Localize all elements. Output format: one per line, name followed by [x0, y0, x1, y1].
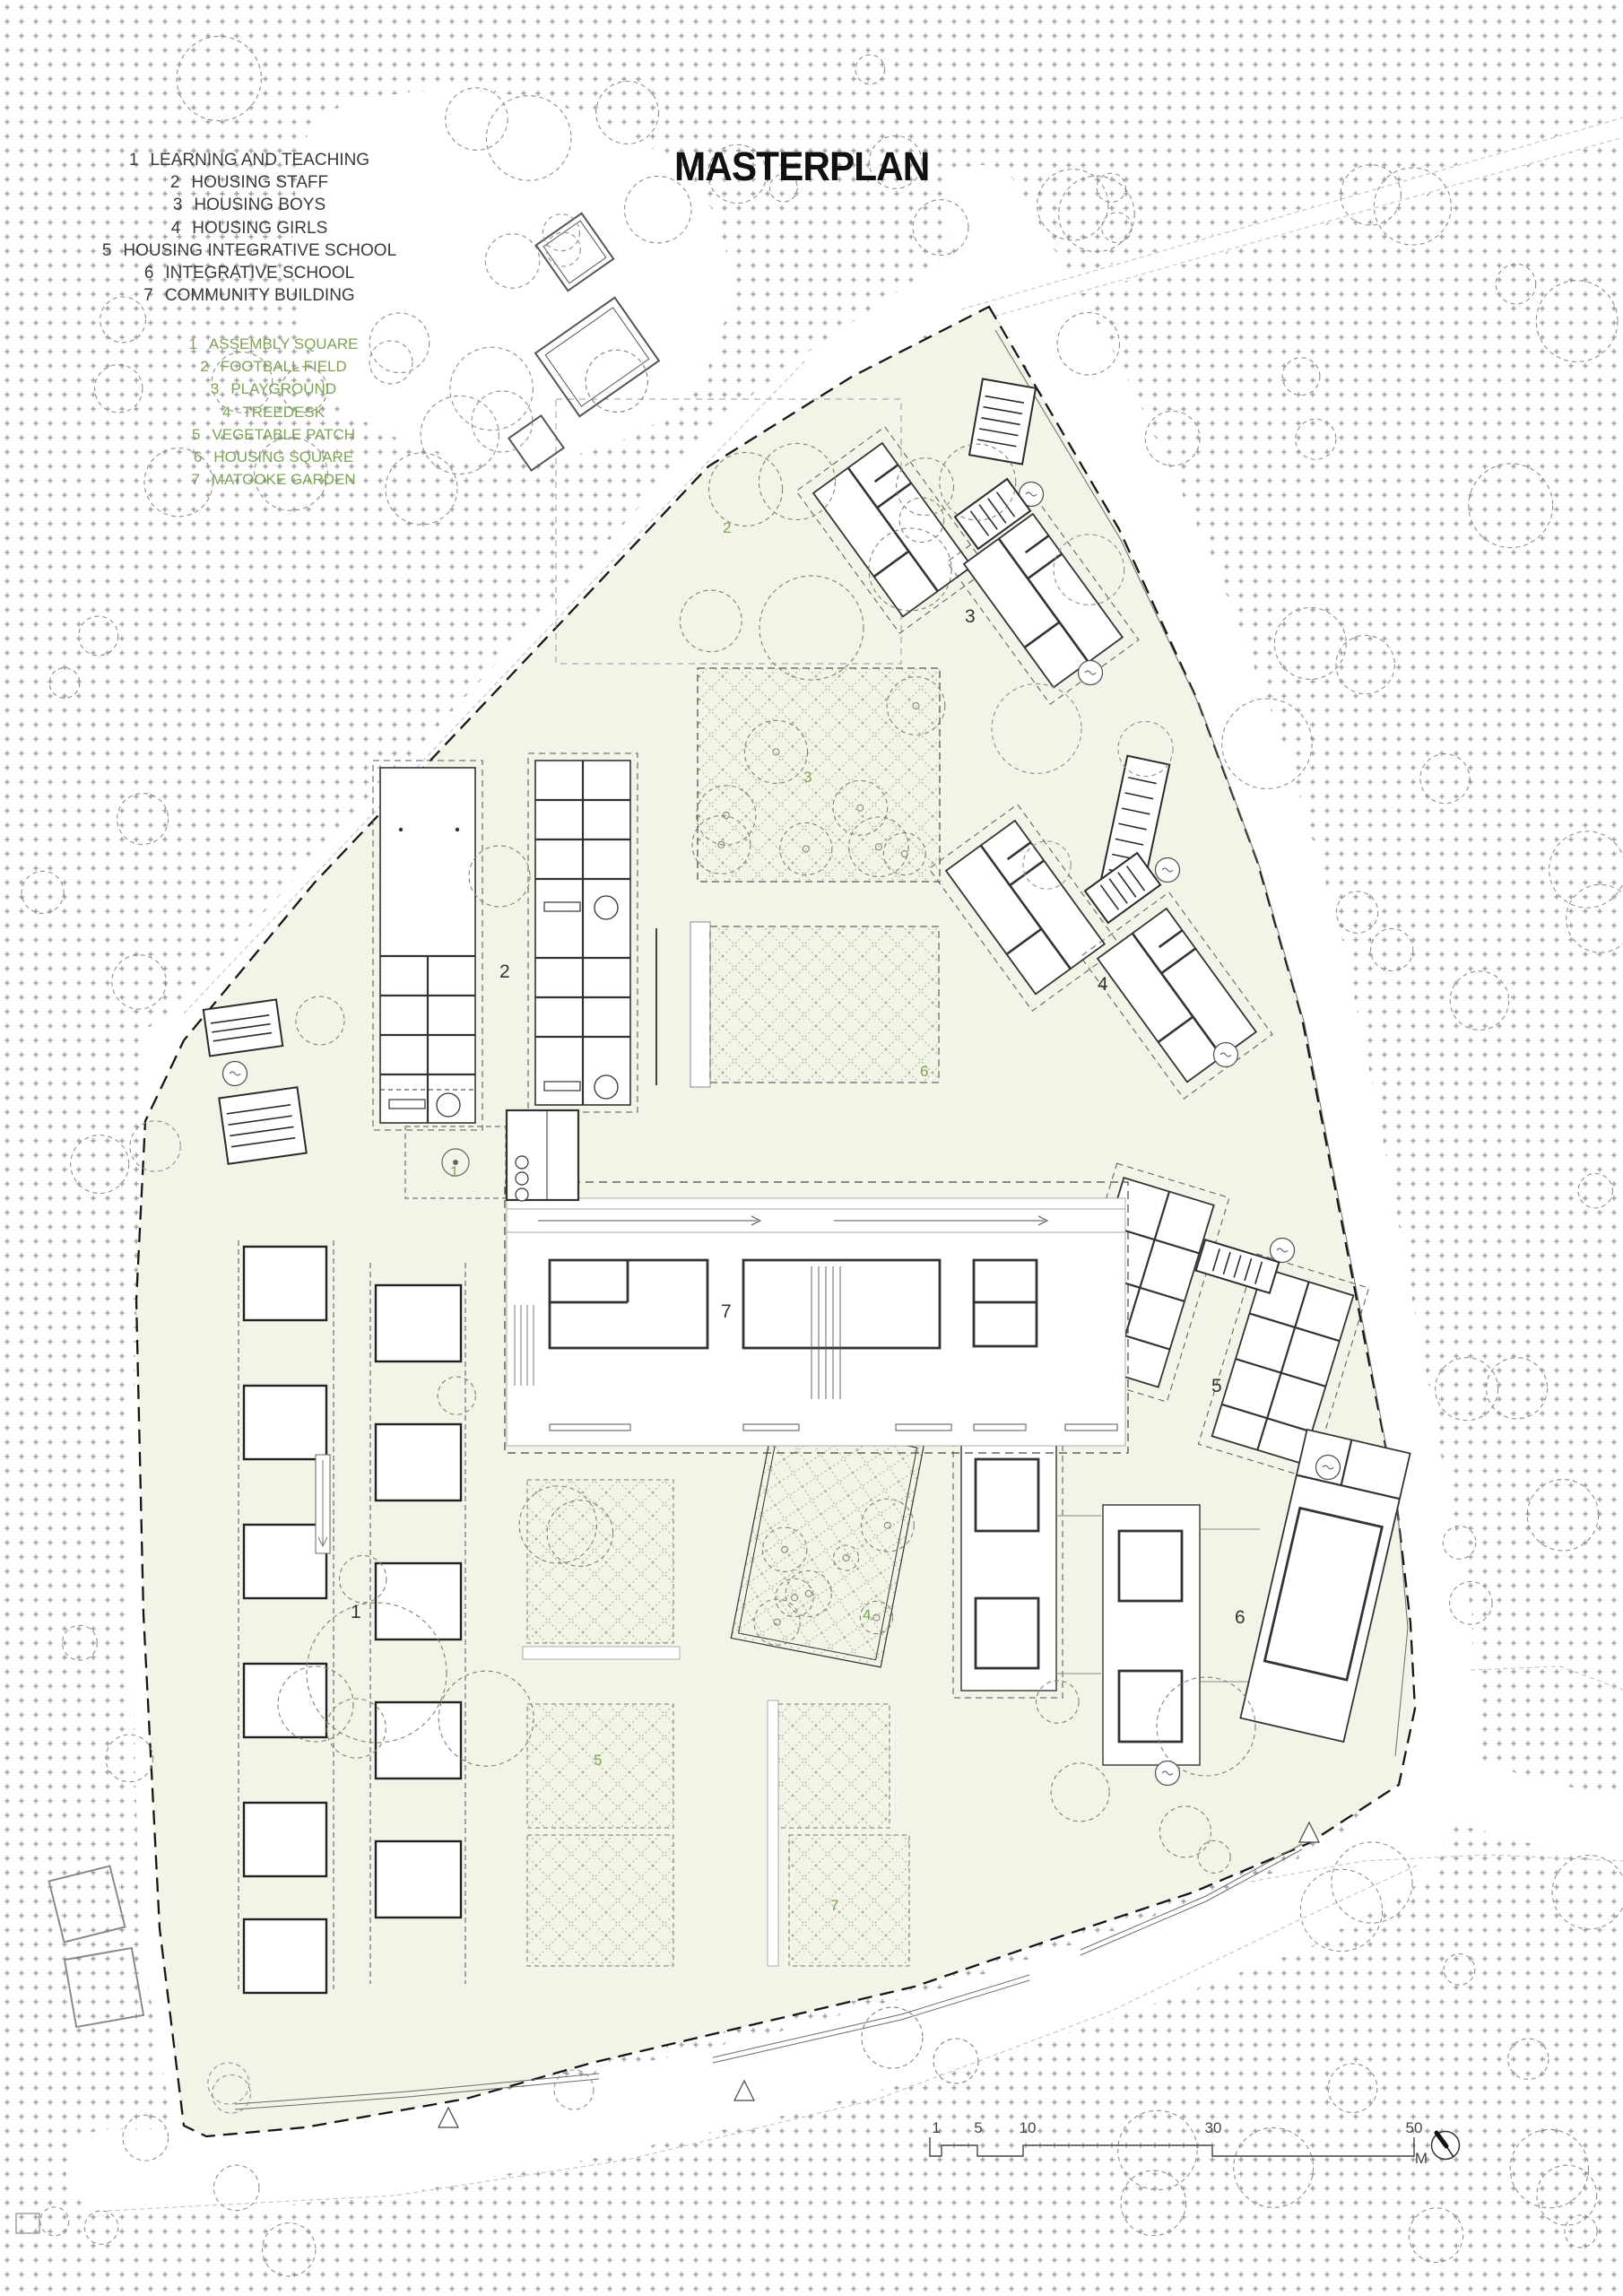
scale-tick: 10	[1020, 2119, 1037, 2136]
matooke-garden-plot	[527, 1835, 673, 1966]
plan-green-label-1: 1	[450, 1163, 458, 1180]
bench-wall	[690, 922, 710, 1087]
plan-green-label-5: 5	[594, 1752, 602, 1769]
plan-green-label-2: 2	[723, 519, 731, 536]
playground	[698, 668, 940, 882]
scale-tick: 5	[974, 2119, 982, 2136]
housing-square	[710, 926, 939, 1083]
legend-item: 7MATOOKE GARDEN	[126, 468, 421, 491]
matooke-garden-plot	[789, 1835, 909, 1966]
scale-tick: 1	[932, 2119, 940, 2136]
legend-item: 7COMMUNITY BUILDING	[79, 284, 420, 307]
plan-label-3: 3	[965, 606, 976, 627]
scale-unit: M	[1415, 2150, 1428, 2167]
plan-label-7: 7	[721, 1301, 732, 1322]
plan-green-label-6: 6	[920, 1063, 928, 1080]
plan-label-6: 6	[1235, 1607, 1245, 1628]
matooke-garden-plot	[778, 1704, 890, 1828]
plan-green-label-3: 3	[803, 769, 811, 786]
vegetable-patch-plot	[527, 1480, 673, 1643]
legend-item: 5VEGETABLE PATCH	[126, 423, 421, 446]
legend-item: 4TREEDESK	[126, 401, 421, 423]
legend-item: 6HOUSING SQUARE	[126, 446, 421, 468]
plan-green-label-7: 7	[830, 1897, 838, 1914]
stair-symbol	[316, 1455, 330, 1553]
legend-item: 6INTEGRATIVE SCHOOL	[79, 262, 420, 284]
plan-label-5: 5	[1211, 1376, 1222, 1396]
page-title: MASTERPLAN	[674, 143, 935, 190]
legend-item: 1LEARNING AND TEACHING	[79, 149, 420, 171]
garden-path	[768, 1700, 778, 1966]
scale-tick: 30	[1205, 2119, 1222, 2136]
legend-item: 3HOUSING BOYS	[79, 194, 420, 216]
plan-label-2: 2	[499, 961, 510, 982]
legend-item: 5HOUSING INTEGRATIVE SCHOOL	[79, 239, 420, 262]
legend-item: 2HOUSING STAFF	[79, 171, 420, 194]
legend-item: 4HOUSING GIRLS	[79, 217, 420, 239]
legend-landscape: 1ASSEMBLY SQUARE 2FOOTBALL FIELD 3PLAYGR…	[126, 333, 421, 491]
legend-item: 2FOOTBALL FIELD	[126, 355, 421, 378]
plan-label-1: 1	[351, 1602, 361, 1622]
plan-label-4: 4	[1098, 974, 1108, 995]
legend-item: 3PLAYGROUND	[126, 378, 421, 400]
scale-tick: 50	[1406, 2119, 1423, 2136]
legend-buildings: 1LEARNING AND TEACHING 2HOUSING STAFF 3H…	[79, 149, 420, 307]
garden-path	[523, 1647, 680, 1659]
masterplan-sheet: 1 2 3 4 5 6 7 1 2 3 4 5 6 7 1 5 10 30 50…	[0, 0, 1623, 2296]
north-arrow-icon	[1432, 2132, 1460, 2160]
plan-green-label-4: 4	[863, 1606, 871, 1623]
legend-item: 1ASSEMBLY SQUARE	[126, 333, 421, 355]
